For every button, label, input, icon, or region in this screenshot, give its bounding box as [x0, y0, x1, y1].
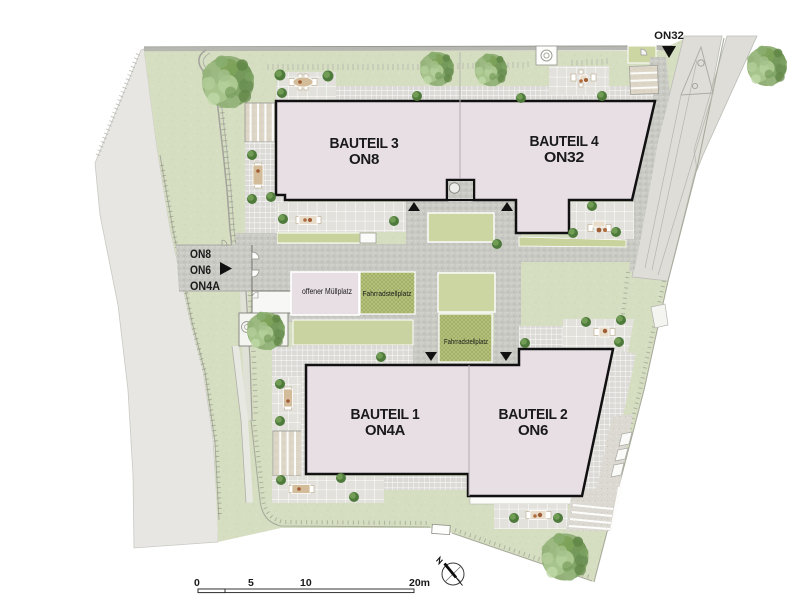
svg-text:ON4A: ON4A — [365, 423, 406, 439]
svg-text:ON8: ON8 — [349, 152, 379, 168]
svg-text:20m: 20m — [409, 577, 430, 589]
svg-text:ON8: ON8 — [190, 249, 212, 261]
svg-text:ON6: ON6 — [190, 265, 211, 277]
svg-text:BAUTEIL 2: BAUTEIL 2 — [499, 407, 568, 423]
svg-text:ON6: ON6 — [518, 423, 548, 439]
svg-text:BAUTEIL 4: BAUTEIL 4 — [530, 134, 599, 150]
svg-text:Fahrradstellplatz: Fahrradstellplatz — [363, 289, 412, 298]
svg-text:Fahrradstellplatz: Fahrradstellplatz — [444, 337, 488, 346]
svg-text:0: 0 — [194, 577, 200, 589]
svg-text:ON32: ON32 — [654, 30, 684, 42]
svg-text:ON32: ON32 — [544, 150, 584, 166]
svg-text:BAUTEIL 3: BAUTEIL 3 — [330, 136, 399, 152]
svg-text:BAUTEIL 1: BAUTEIL 1 — [351, 407, 420, 423]
svg-text:offener Müllplatz: offener Müllplatz — [302, 286, 352, 296]
svg-text:5: 5 — [248, 577, 254, 589]
svg-text:ON4A: ON4A — [190, 281, 220, 293]
svg-text:10: 10 — [300, 577, 312, 589]
